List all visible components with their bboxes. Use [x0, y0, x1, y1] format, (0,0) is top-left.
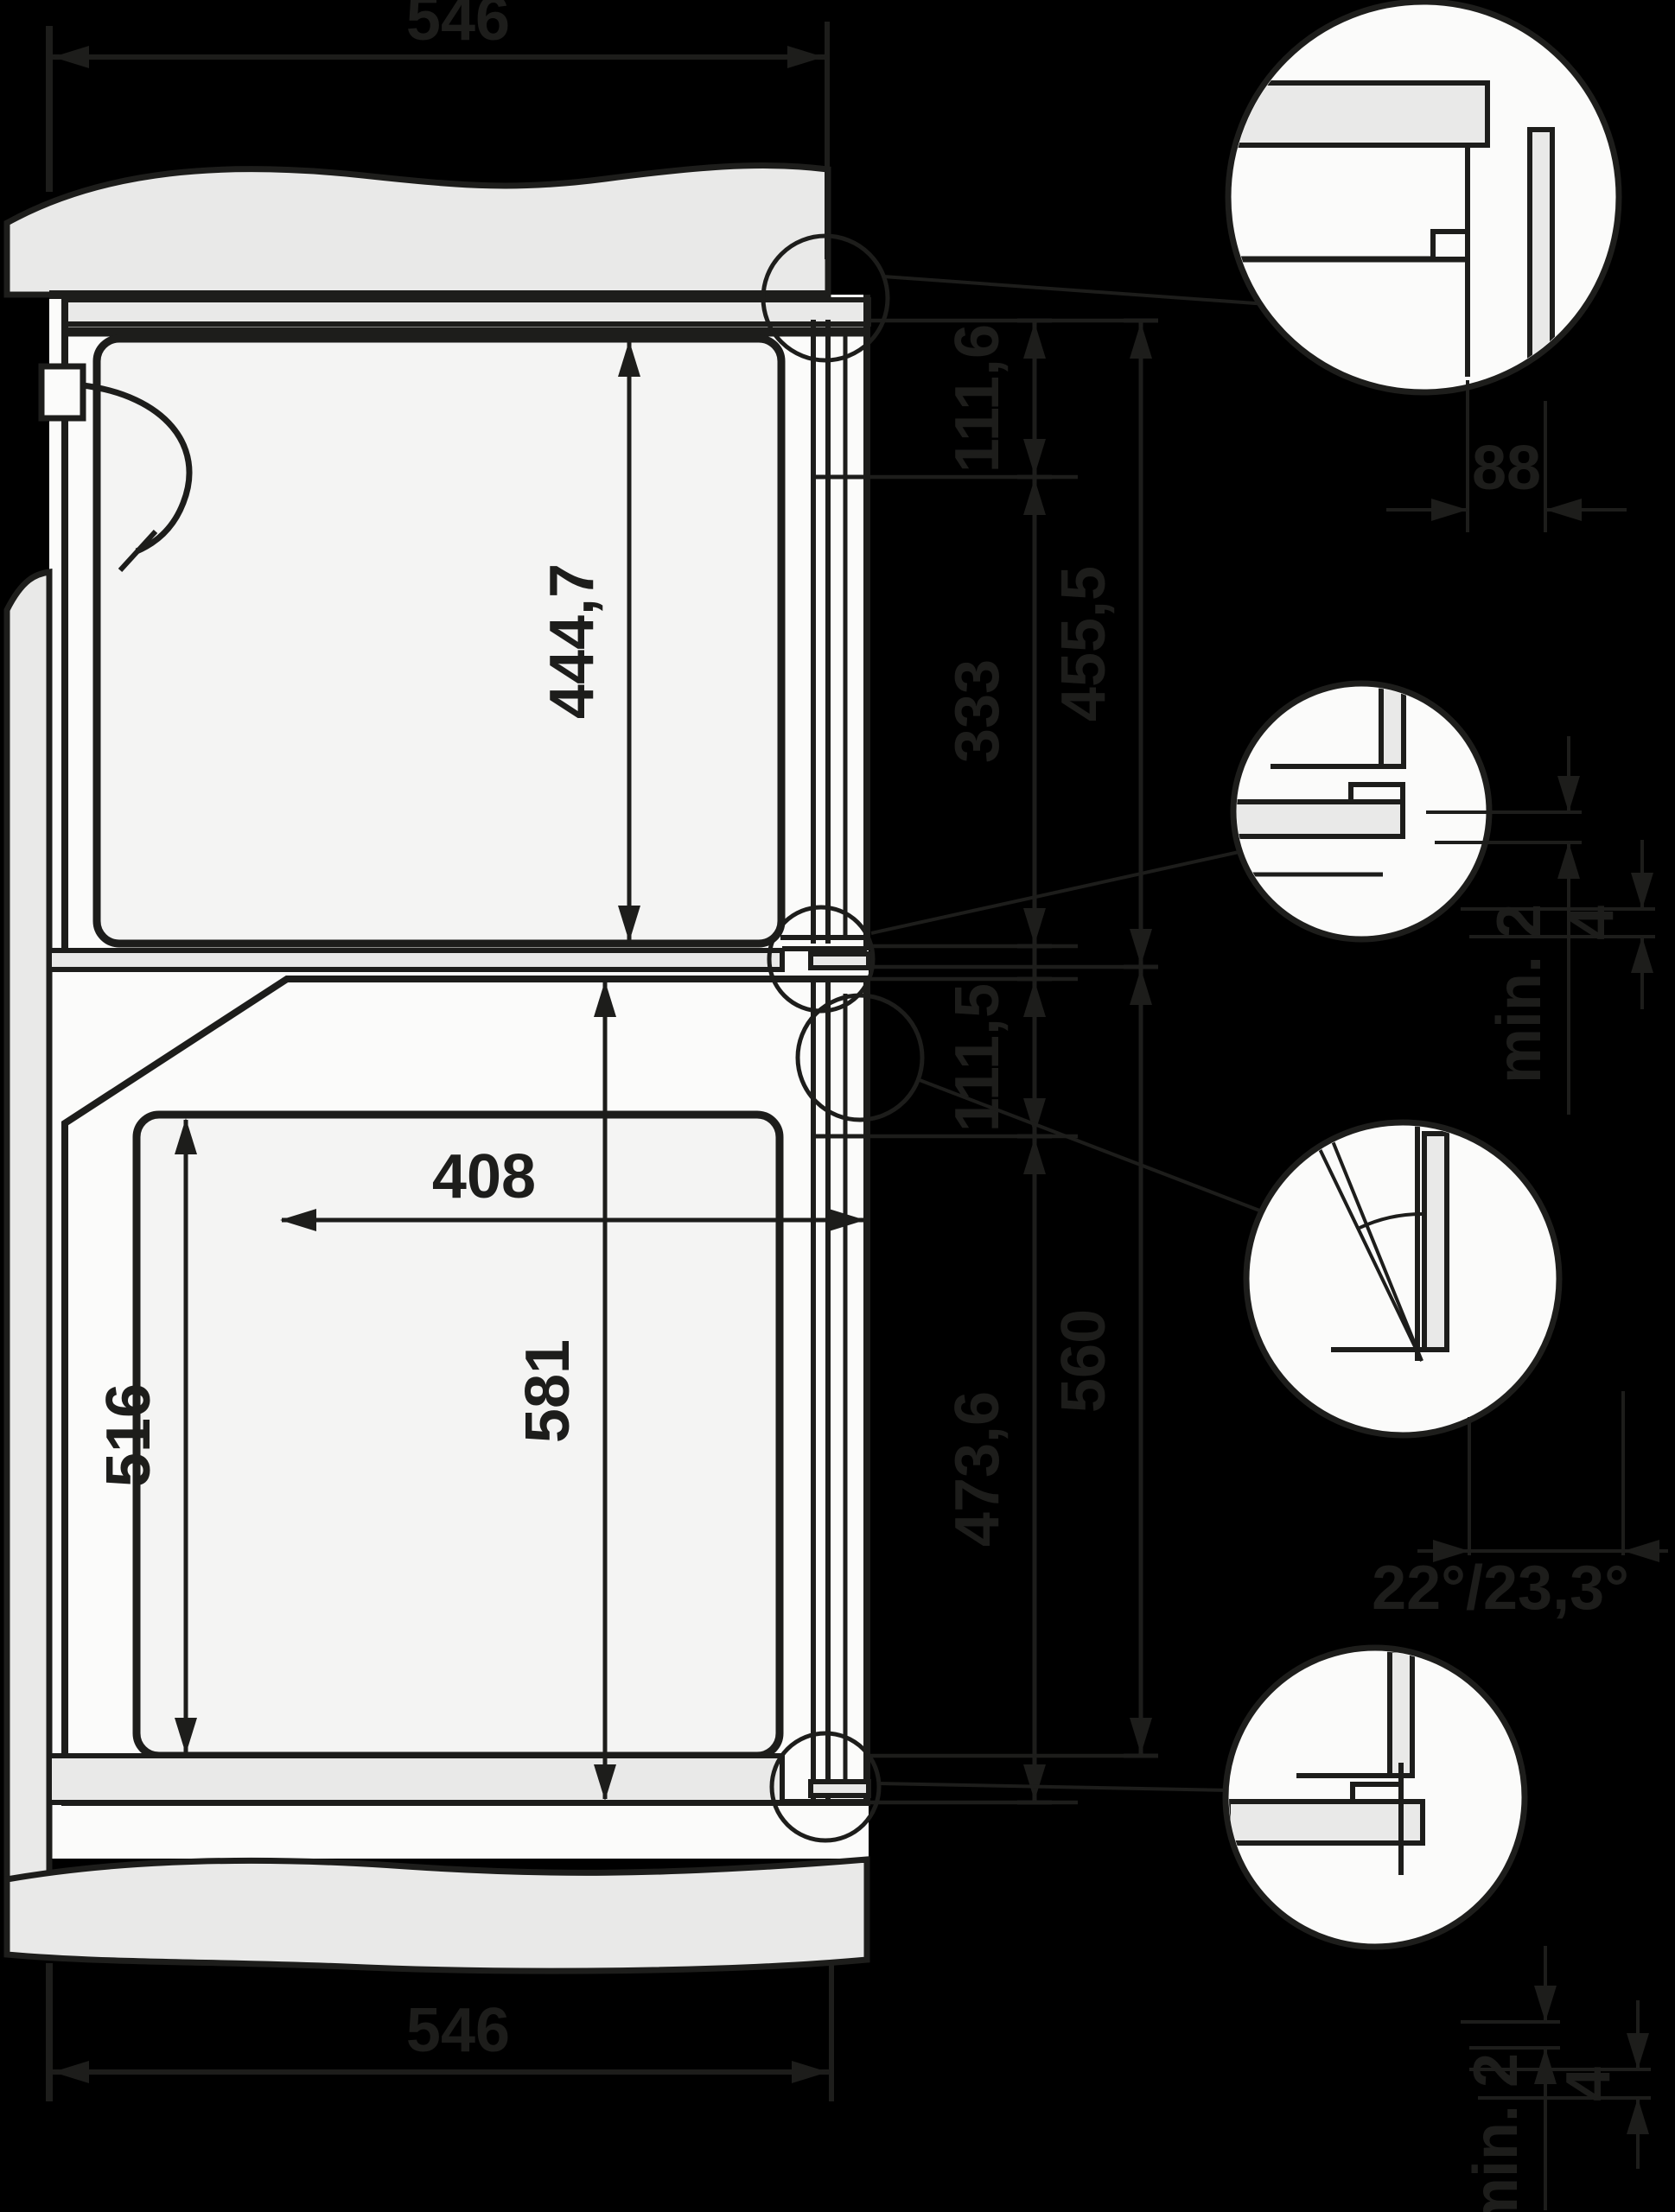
divider-front-trim — [811, 954, 869, 968]
detail2-door-bottom — [1381, 683, 1404, 766]
dim-label-top-depth: 546 — [406, 0, 510, 54]
detail2-trim — [1351, 785, 1403, 802]
dim-label-lower-cavity-height: 516 — [94, 1383, 163, 1487]
bottom-shelf — [49, 1756, 869, 1802]
detail3-door-edge — [1424, 1134, 1447, 1350]
divider-shelf — [49, 949, 869, 969]
dim-label-detail4-overlap: 4 — [1554, 2067, 1623, 2101]
dim-label-upper-front-height: 444,7 — [538, 563, 607, 719]
dim-label-upper-door-height: 333 — [943, 659, 1012, 763]
detail4-trim — [1353, 1784, 1401, 1802]
dim-label-lower-cavity-depth: 408 — [432, 1142, 536, 1211]
dim-label-detail4-min-gap: min. 2 — [1462, 2053, 1531, 2212]
cabinet-bottom-break — [7, 1859, 867, 1971]
installation-diagram: 546 546 444,7 581 — [0, 0, 1675, 2212]
section-drawing: 546 546 444,7 581 — [0, 0, 1675, 2212]
cabinet-side-panel — [7, 572, 49, 1948]
upper-appliance-top-trim — [65, 300, 869, 324]
upper-appliance — [41, 295, 869, 950]
dim-label-detail1-gap: 88 — [1472, 434, 1541, 503]
dim-label-lower-front-height: 581 — [513, 1339, 583, 1443]
dim-label-upper-total-height: 455,5 — [1049, 566, 1118, 721]
main-section-view — [7, 166, 869, 1972]
dim-label-detail2-overlap: 4 — [1557, 906, 1627, 940]
connection-box — [41, 366, 83, 418]
dim-label-detail2-min-gap: min. 2 — [1485, 904, 1554, 1084]
cabinet-top-panel — [7, 166, 828, 295]
detail4-shelf — [1228, 1802, 1423, 1843]
bottom-shelf-panel — [49, 1756, 782, 1802]
bottom-shelf-front-trim — [811, 1782, 869, 1796]
detail1-trim-lip — [1433, 232, 1468, 259]
dim-label-detail3-angles: 22°/23,3° — [1372, 1554, 1629, 1623]
divider-panel — [49, 950, 782, 969]
dim-label-bottom-depth: 546 — [406, 1996, 510, 2065]
dim-label-lower-door-height: 473,6 — [943, 1391, 1012, 1547]
dim-label-lower-panel-height: 111,5 — [943, 983, 1012, 1132]
dim-label-upper-panel-height: 111,6 — [943, 324, 1012, 473]
upper-oven-cavity — [97, 339, 781, 944]
detail4-door-bottom — [1390, 1650, 1412, 1776]
dim-label-lower-niche-height: 560 — [1049, 1309, 1118, 1413]
detail2-shelf — [1233, 802, 1403, 836]
